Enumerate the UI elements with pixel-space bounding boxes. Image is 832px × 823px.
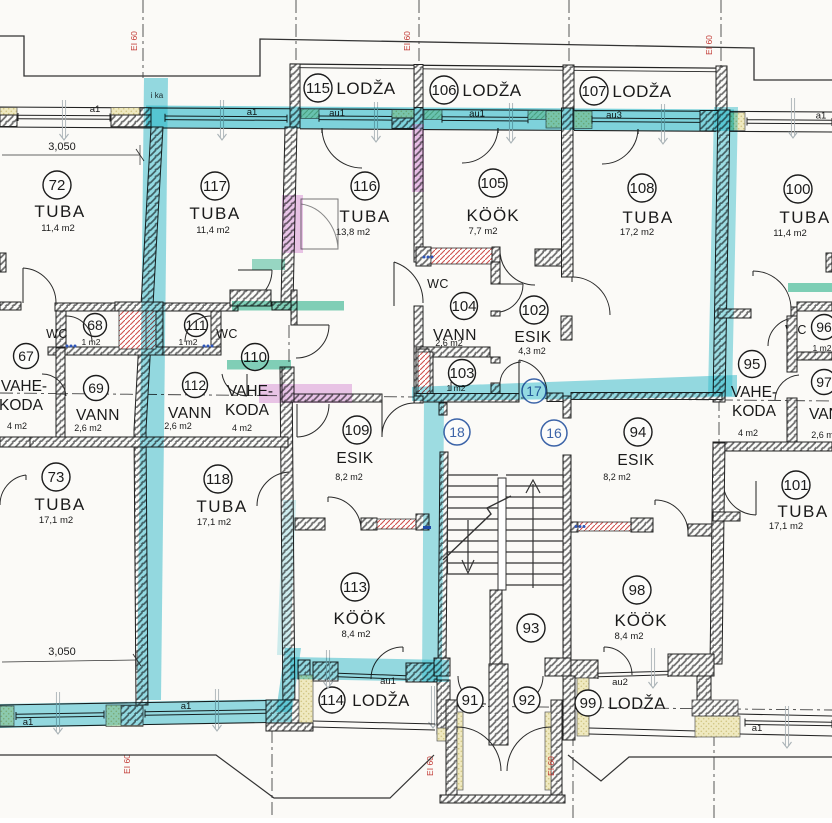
svg-text:TUBA: TUBA <box>777 502 828 521</box>
svg-text:TUBA: TUBA <box>622 208 673 227</box>
svg-text:109: 109 <box>344 422 369 439</box>
svg-text:TUBA: TUBA <box>196 497 247 516</box>
svg-text:112: 112 <box>184 377 207 393</box>
svg-text:VAHE-: VAHE- <box>1 378 47 395</box>
svg-text:2,6 m2: 2,6 m2 <box>164 421 192 431</box>
svg-text:4 m2: 4 m2 <box>7 421 27 431</box>
svg-text:a1: a1 <box>90 104 101 115</box>
svg-text:VANN: VANN <box>809 406 832 423</box>
svg-text:100: 100 <box>785 181 810 198</box>
svg-text:WC: WC <box>46 327 68 341</box>
svg-text:7,7 m2: 7,7 m2 <box>468 226 497 237</box>
svg-text:EI 60: EI 60 <box>546 756 556 776</box>
svg-text:a1: a1 <box>752 723 763 734</box>
svg-text:101: 101 <box>783 477 808 494</box>
svg-text:116: 116 <box>353 178 377 195</box>
svg-text:KODA: KODA <box>732 403 777 420</box>
svg-text:99: 99 <box>580 695 597 712</box>
svg-text:EI 60: EI 60 <box>122 754 132 774</box>
svg-text:17,2 m2: 17,2 m2 <box>620 227 654 238</box>
svg-text:104: 104 <box>451 298 476 315</box>
svg-text:11,4 m2: 11,4 m2 <box>196 225 230 236</box>
svg-text:95: 95 <box>744 356 761 373</box>
svg-text:8,2 m2: 8,2 m2 <box>603 472 631 482</box>
svg-text:97: 97 <box>816 374 832 390</box>
svg-text:91: 91 <box>462 692 479 709</box>
svg-text:ESIK: ESIK <box>617 452 654 469</box>
svg-text:108: 108 <box>629 180 654 197</box>
svg-text:2,6 m2: 2,6 m2 <box>811 430 832 440</box>
svg-text:111: 111 <box>185 317 206 333</box>
svg-text:13,8 m2: 13,8 m2 <box>336 227 370 238</box>
svg-text:17,1 m2: 17,1 m2 <box>197 517 231 528</box>
svg-text:93: 93 <box>523 620 540 637</box>
svg-text:LODŽA: LODŽA <box>612 82 671 101</box>
svg-text:VANN: VANN <box>168 405 212 422</box>
svg-text:EI 60: EI 60 <box>704 35 714 55</box>
svg-text:96: 96 <box>816 319 832 335</box>
svg-text:107: 107 <box>581 83 606 100</box>
svg-text:3,050: 3,050 <box>48 646 76 658</box>
svg-text:103: 103 <box>449 365 474 382</box>
svg-text:11,4 m2: 11,4 m2 <box>41 223 75 234</box>
svg-text:LODŽA: LODŽA <box>352 691 410 710</box>
svg-text:ESIK: ESIK <box>336 450 373 467</box>
svg-text:WC: WC <box>216 327 238 341</box>
svg-text:8,2 m2: 8,2 m2 <box>335 472 363 482</box>
svg-text:4 m2: 4 m2 <box>738 428 758 438</box>
svg-text:TUBA: TUBA <box>339 207 390 226</box>
svg-text:LODŽA: LODŽA <box>336 79 395 98</box>
svg-text:73: 73 <box>48 469 65 486</box>
svg-text:1 m2: 1 m2 <box>82 337 101 347</box>
svg-text:TUBA: TUBA <box>779 208 830 227</box>
svg-text:KÖÖK: KÖÖK <box>333 609 386 628</box>
svg-text:TUBA: TUBA <box>34 495 85 514</box>
svg-text:1 m2: 1 m2 <box>179 337 198 347</box>
svg-text:8,4 m2: 8,4 m2 <box>614 631 643 642</box>
svg-text:102: 102 <box>521 302 546 319</box>
svg-text:69: 69 <box>88 380 104 396</box>
svg-text:a1: a1 <box>816 111 827 122</box>
svg-text:WC: WC <box>427 277 449 291</box>
svg-text:18: 18 <box>449 424 465 440</box>
svg-text:11,4 m2: 11,4 m2 <box>773 228 807 239</box>
svg-text:17,1 m2: 17,1 m2 <box>39 515 73 526</box>
svg-text:au2: au2 <box>612 677 628 688</box>
svg-text:KÖÖK: KÖÖK <box>466 206 519 225</box>
svg-text:VANN: VANN <box>76 407 120 424</box>
svg-text:113: 113 <box>343 579 367 596</box>
svg-text:KÖÖK: KÖÖK <box>614 611 667 630</box>
svg-text:EI 60: EI 60 <box>129 31 139 51</box>
svg-text:KODA: KODA <box>0 397 44 414</box>
svg-text:3,050: 3,050 <box>48 141 76 153</box>
svg-text:72: 72 <box>49 177 66 194</box>
svg-text:8,4 m2: 8,4 m2 <box>341 629 370 640</box>
svg-text:KODA: KODA <box>225 402 270 419</box>
svg-text:4,3 m2: 4,3 m2 <box>518 346 546 356</box>
svg-text:115: 115 <box>306 80 330 97</box>
svg-text:114: 114 <box>320 692 344 709</box>
svg-text:92: 92 <box>519 692 536 709</box>
svg-text:106: 106 <box>431 82 456 99</box>
svg-text:LODŽA: LODŽA <box>608 694 666 713</box>
svg-text:2,6 m2: 2,6 m2 <box>74 423 102 433</box>
svg-text:4 m2: 4 m2 <box>232 423 252 433</box>
svg-text:67: 67 <box>18 348 34 364</box>
svg-text:TUBA: TUBA <box>189 204 240 223</box>
svg-text:EI 60: EI 60 <box>402 31 412 51</box>
svg-text:117: 117 <box>203 178 227 195</box>
svg-text:LODŽA: LODŽA <box>462 81 521 100</box>
svg-text:TUBA: TUBA <box>34 202 85 221</box>
svg-text:17,1 m2: 17,1 m2 <box>769 521 803 532</box>
svg-text:94: 94 <box>630 424 647 441</box>
svg-text:VAHE-: VAHE- <box>731 384 777 401</box>
svg-text:98: 98 <box>629 582 646 599</box>
svg-text:105: 105 <box>480 175 505 192</box>
svg-text:16: 16 <box>546 425 562 441</box>
svg-text:118: 118 <box>206 471 230 488</box>
svg-text:ESIK: ESIK <box>514 329 551 346</box>
